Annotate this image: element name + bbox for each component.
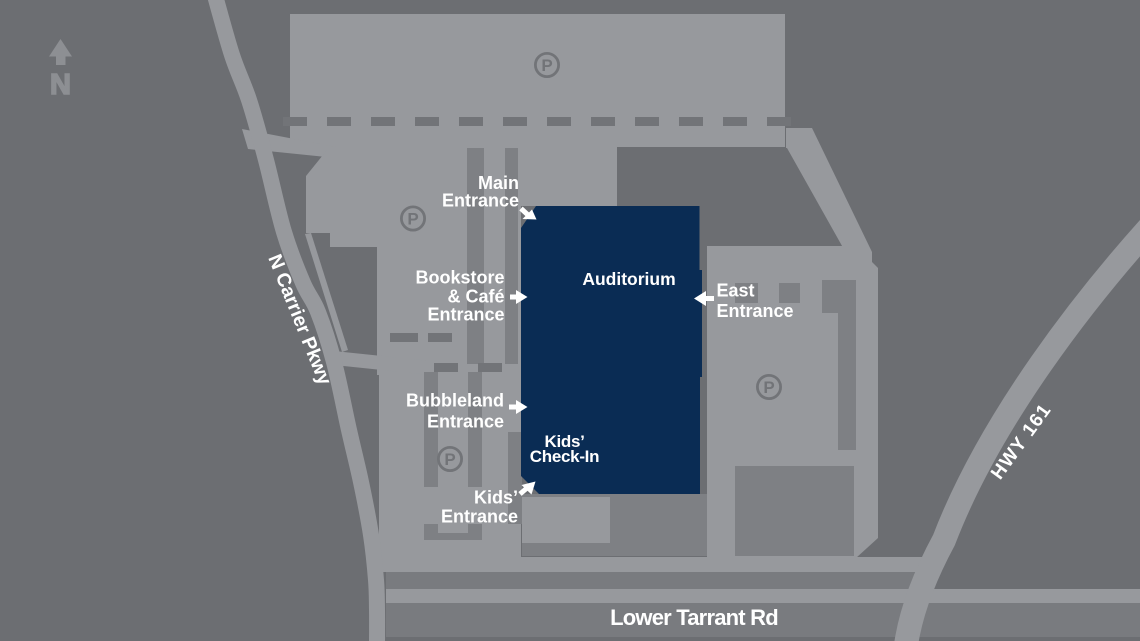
svg-text:Auditorium: Auditorium <box>582 269 675 289</box>
svg-text:Kids’: Kids’ <box>474 488 518 508</box>
svg-text:& Café: & Café <box>447 287 504 307</box>
svg-text:Bubbleland: Bubbleland <box>406 391 504 411</box>
svg-text:P: P <box>444 450 455 469</box>
svg-text:East: East <box>717 281 755 301</box>
svg-text:Entrance: Entrance <box>427 305 504 325</box>
svg-text:Entrance: Entrance <box>427 412 504 432</box>
svg-text:Entrance: Entrance <box>717 301 794 321</box>
svg-text:Check-In: Check-In <box>530 447 599 466</box>
svg-text:Lower Tarrant Rd: Lower Tarrant Rd <box>610 605 778 630</box>
svg-text:P: P <box>407 210 418 229</box>
svg-text:N: N <box>50 69 71 101</box>
svg-text:P: P <box>541 56 552 75</box>
svg-text:P: P <box>763 378 774 397</box>
svg-text:Entrance: Entrance <box>441 507 518 527</box>
svg-text:Bookstore: Bookstore <box>415 268 504 288</box>
svg-text:Entrance: Entrance <box>442 191 519 211</box>
